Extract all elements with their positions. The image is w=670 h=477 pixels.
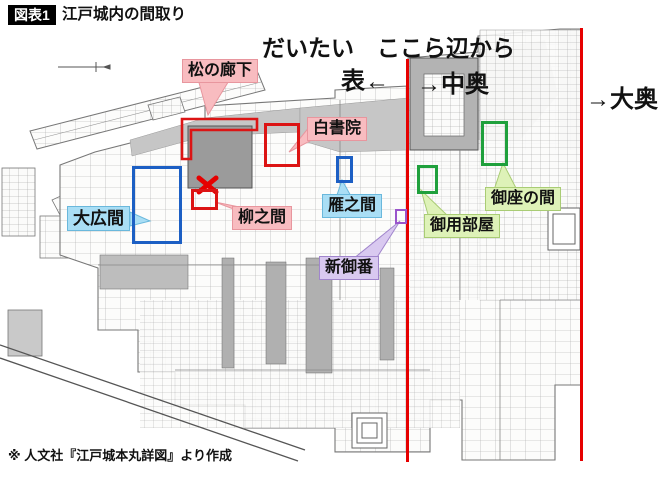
oooku-direction-label: →大奥 (586, 79, 658, 114)
shiro-shoin-outline (264, 123, 300, 167)
room-label-ohiroma: 大広間 (67, 206, 130, 231)
compass-mark (58, 62, 110, 72)
nakaoku-direction-label: →中奥 (417, 64, 489, 99)
figure-edo-castle-floorplan: 図表1 江戸城内の間取り だいたい ここら辺から 表← →中奥 →大奥 松の廊下… (0, 0, 670, 477)
room-label-shin-goban: 新御番 (319, 256, 379, 280)
room-label-shiro-shoin: 白書院 (307, 117, 367, 141)
room-label-matsu-no-roka: 松の廊下 (182, 59, 258, 83)
room-label-gan-no-ma: 雁之間 (322, 194, 382, 218)
castle-map-drawing (0, 0, 670, 477)
source-attribution: ※ 人文社『江戸城本丸詳図』より作成 (8, 445, 232, 464)
section-divider-line-nakaoku-oooku (580, 28, 583, 461)
room-label-yanagi-no-ma: 柳之間 (232, 206, 292, 230)
shin-goban-outline (395, 209, 407, 224)
goyo-beya-outline (417, 165, 438, 194)
room-label-goyo-beya: 御用部屋 (424, 214, 500, 238)
approx-boundary-note: だいたい ここら辺から (262, 29, 515, 63)
room-label-goza-no-ma: 御座の間 (485, 187, 561, 211)
omote-direction-label: 表← (341, 61, 389, 96)
gan-no-ma-outline (336, 156, 353, 183)
figure-number-badge: 図表1 (8, 5, 56, 25)
figure-title: 江戸城内の間取り (62, 5, 186, 25)
goza-no-ma-outline (481, 121, 508, 166)
section-divider-line-omote-nakaoku (406, 59, 409, 462)
ohiroma-outline (132, 166, 182, 244)
yanagi-no-ma-outline (191, 189, 218, 210)
